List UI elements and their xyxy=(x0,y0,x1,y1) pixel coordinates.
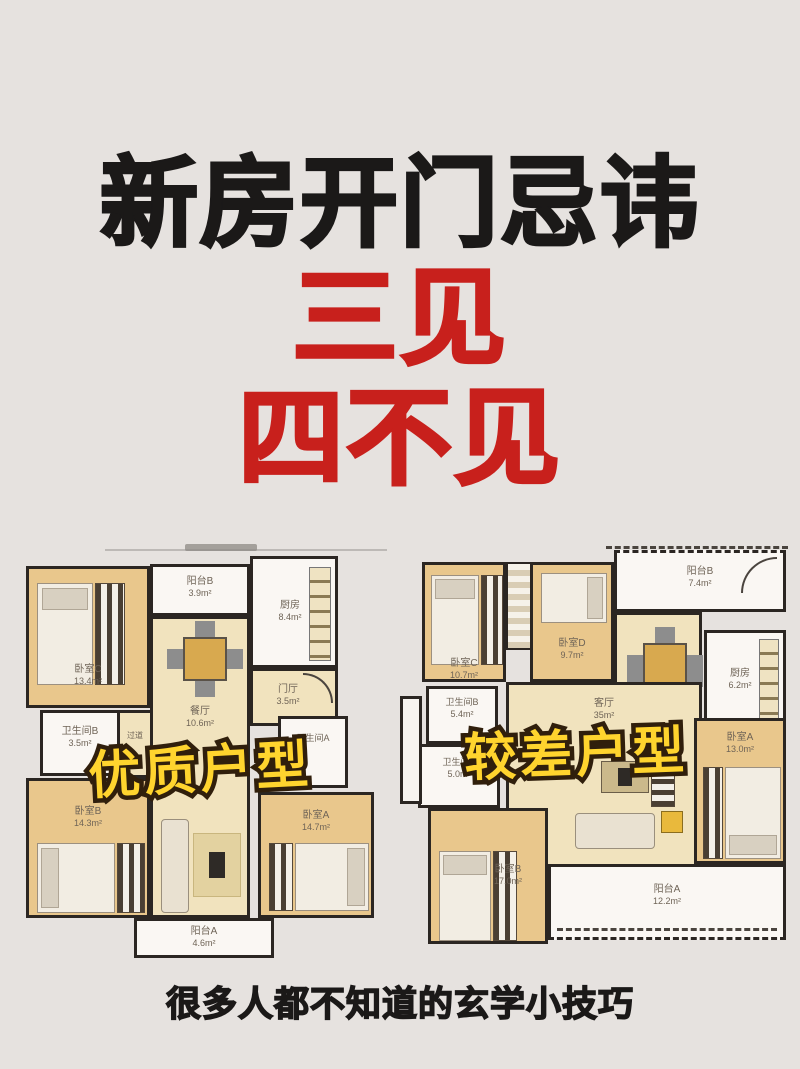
wardrobe-graphic xyxy=(95,583,125,685)
room-bedroom-b: 卧室B 17.0m² xyxy=(428,808,548,944)
room-area: 14.7m² xyxy=(261,822,371,834)
pillow-graphic xyxy=(41,848,59,908)
bed-graphic xyxy=(295,843,369,911)
pillow-graphic xyxy=(443,855,487,875)
room-name: 阳台B xyxy=(153,575,247,588)
room-bedroom-c: 卧室C 13.4m² xyxy=(26,566,150,708)
dashed-boundary-top xyxy=(606,546,788,549)
bed-graphic xyxy=(431,575,479,665)
bed-graphic xyxy=(37,583,93,685)
highlight-line-1: 三见 xyxy=(0,260,800,380)
plan-bad-overlay-label: 较差户型 xyxy=(415,706,737,792)
watermark-remnant xyxy=(185,544,257,551)
room-name: 阳台A xyxy=(137,925,271,938)
room-area: 12.2m² xyxy=(551,896,783,908)
room-area: 3.9m² xyxy=(153,588,247,600)
dining-table-graphic xyxy=(183,637,227,681)
room-bedroom-c: 卧室C 10.7m² xyxy=(422,562,506,682)
sofa-graphic xyxy=(161,819,189,913)
room-name: 餐厅 xyxy=(153,705,247,718)
pillow-graphic xyxy=(347,848,365,906)
room-bedroom-d: 卧室D 9.7m² xyxy=(530,562,614,682)
side-table-graphic xyxy=(661,811,683,833)
highlight-line-2: 四不见 xyxy=(0,380,800,500)
room-area: 4.6m² xyxy=(137,938,271,950)
floorplan-bad: 卧室C 10.7m² 卧室D 9.7m² 阳台B 7.4m² 厨房 6.2m² xyxy=(398,546,792,962)
room-name: 卧室D xyxy=(533,637,611,650)
room-area: 14.3m² xyxy=(29,818,147,830)
door-arc xyxy=(303,673,333,703)
dashed-boundary-bottom xyxy=(557,928,777,931)
pillow-graphic xyxy=(587,577,603,619)
room-bedroom-a: 卧室A 14.7m² xyxy=(258,792,374,918)
room-name: 卧室A xyxy=(261,809,371,822)
highlight-text: 三见 四不见 xyxy=(0,260,800,500)
room-balcony-b: 阳台B 3.9m² xyxy=(150,564,250,616)
bed-graphic xyxy=(439,851,491,941)
room-balcony-a: 阳台A 12.2m² xyxy=(548,864,786,940)
footer-note: 很多人都不知道的玄学小技巧 xyxy=(0,976,800,1027)
kitchen-counter-graphic xyxy=(309,567,331,661)
wardrobe-graphic xyxy=(481,575,503,665)
page-title: 新房开门忌讳 xyxy=(0,152,800,255)
room-balcony-b: 阳台B 7.4m² xyxy=(614,550,786,612)
bed-graphic xyxy=(37,843,115,913)
room-name: 阳台A xyxy=(551,883,783,896)
wardrobe-graphic xyxy=(493,851,517,941)
room-area: 9.7m² xyxy=(533,650,611,662)
kitchen-counter-graphic xyxy=(759,639,779,721)
pillow-graphic xyxy=(42,588,88,610)
floorplan-good: 卧室C 13.4m² 阳台B 3.9m² 厨房 8.4m² 餐厅 10.6m² xyxy=(12,556,388,958)
door-arc xyxy=(741,557,777,593)
pillow-graphic xyxy=(435,579,475,599)
room-name: 卫生间B xyxy=(429,697,495,709)
wardrobe-graphic xyxy=(117,843,145,913)
sofa-graphic xyxy=(575,813,655,849)
pillow-graphic xyxy=(729,835,777,855)
rug-graphic xyxy=(193,833,241,897)
bed-graphic xyxy=(541,573,607,623)
room-area: 10.7m² xyxy=(425,670,503,682)
room-balcony-a: 阳台A 4.6m² xyxy=(134,918,274,958)
wardrobe-graphic xyxy=(269,843,293,911)
room-kitchen: 厨房 8.4m² xyxy=(250,556,338,668)
tv-graphic xyxy=(209,852,225,878)
